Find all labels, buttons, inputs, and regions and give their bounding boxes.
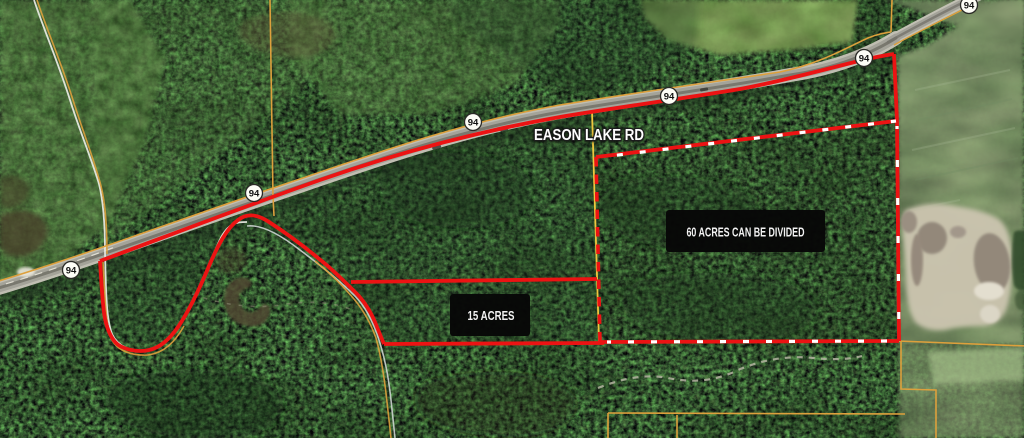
svg-text:EASON LAKE RD: EASON LAKE RD bbox=[534, 127, 644, 144]
svg-text:60 ACRES CAN BE DIVIDED: 60 ACRES CAN BE DIVIDED bbox=[687, 226, 805, 240]
svg-text:15 ACRES: 15 ACRES bbox=[468, 309, 515, 323]
